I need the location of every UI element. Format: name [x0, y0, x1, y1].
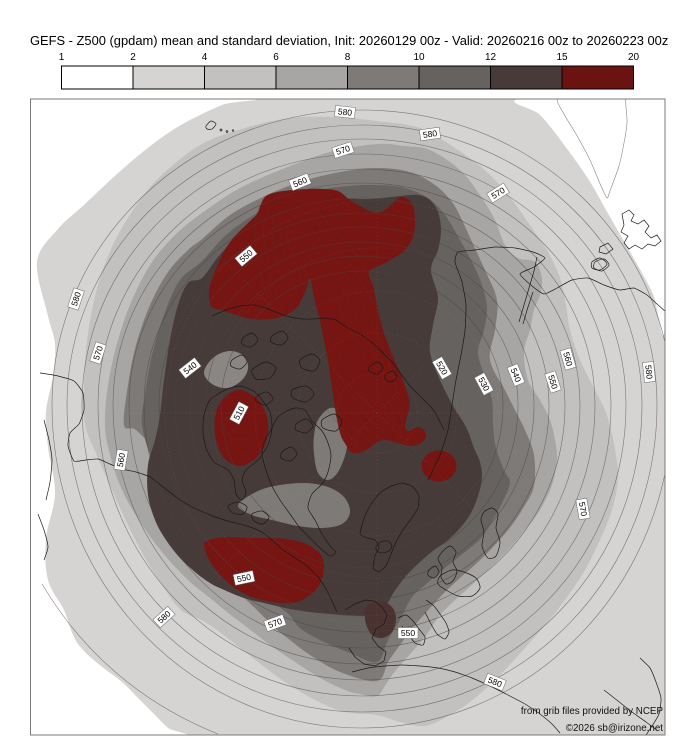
- svg-text:15: 15: [556, 52, 568, 63]
- svg-text:1: 1: [59, 52, 65, 63]
- svg-text:580: 580: [643, 364, 654, 379]
- svg-text:6: 6: [273, 52, 279, 63]
- svg-text:8: 8: [345, 52, 351, 63]
- svg-text:580: 580: [337, 106, 352, 117]
- svg-text:580: 580: [422, 128, 438, 140]
- svg-text:20: 20: [628, 52, 640, 63]
- svg-text:2: 2: [130, 52, 136, 63]
- svg-text:550: 550: [401, 628, 415, 638]
- svg-text:12: 12: [485, 52, 497, 63]
- svg-text:©2026 sb@irizone.net: ©2026 sb@irizone.net: [566, 723, 664, 734]
- svg-text:4: 4: [202, 52, 208, 63]
- svg-text:GEFS - Z500 (gpdam) mean and s: GEFS - Z500 (gpdam) mean and standard de…: [30, 33, 668, 48]
- svg-text:from grib files provided by NC: from grib files provided by NCEP: [521, 706, 664, 717]
- svg-text:10: 10: [413, 52, 425, 63]
